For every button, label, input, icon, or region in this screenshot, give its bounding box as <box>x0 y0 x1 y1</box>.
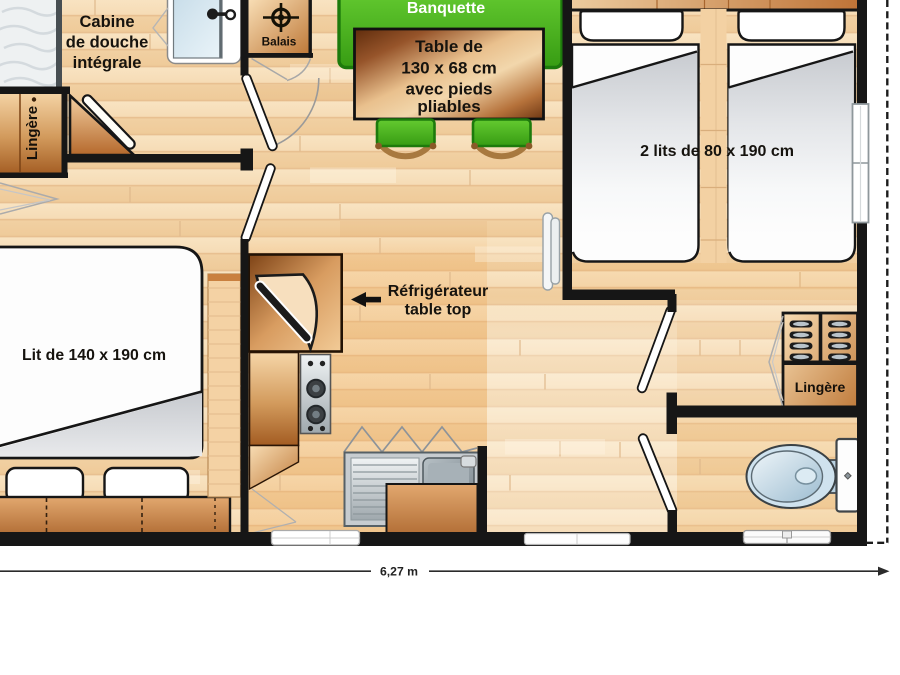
svg-text:de douche: de douche <box>66 34 149 52</box>
svg-text:table top: table top <box>405 302 472 319</box>
svg-text:Lit de 140 x 190 cm: Lit de 140 x 190 cm <box>22 347 166 364</box>
svg-text:pliables: pliables <box>417 97 480 116</box>
svg-text:Banquette: Banquette <box>407 0 485 17</box>
svg-text:Réfrigérateur: Réfrigérateur <box>388 283 488 300</box>
svg-text:Lingère: Lingère <box>795 379 846 395</box>
svg-text:Lingère: Lingère <box>24 106 41 160</box>
svg-text:Cabine: Cabine <box>79 13 134 31</box>
svg-text:2 lits de 80 x 190 cm: 2 lits de 80 x 190 cm <box>640 143 794 160</box>
svg-text:130 x 68 cm: 130 x 68 cm <box>401 59 496 78</box>
svg-text:intégrale: intégrale <box>73 54 142 72</box>
svg-text:6,27 m: 6,27 m <box>380 565 418 579</box>
svg-text:Balais: Balais <box>262 35 297 49</box>
svg-text:Table de: Table de <box>415 37 483 56</box>
svg-text:avec pieds: avec pieds <box>406 80 493 99</box>
